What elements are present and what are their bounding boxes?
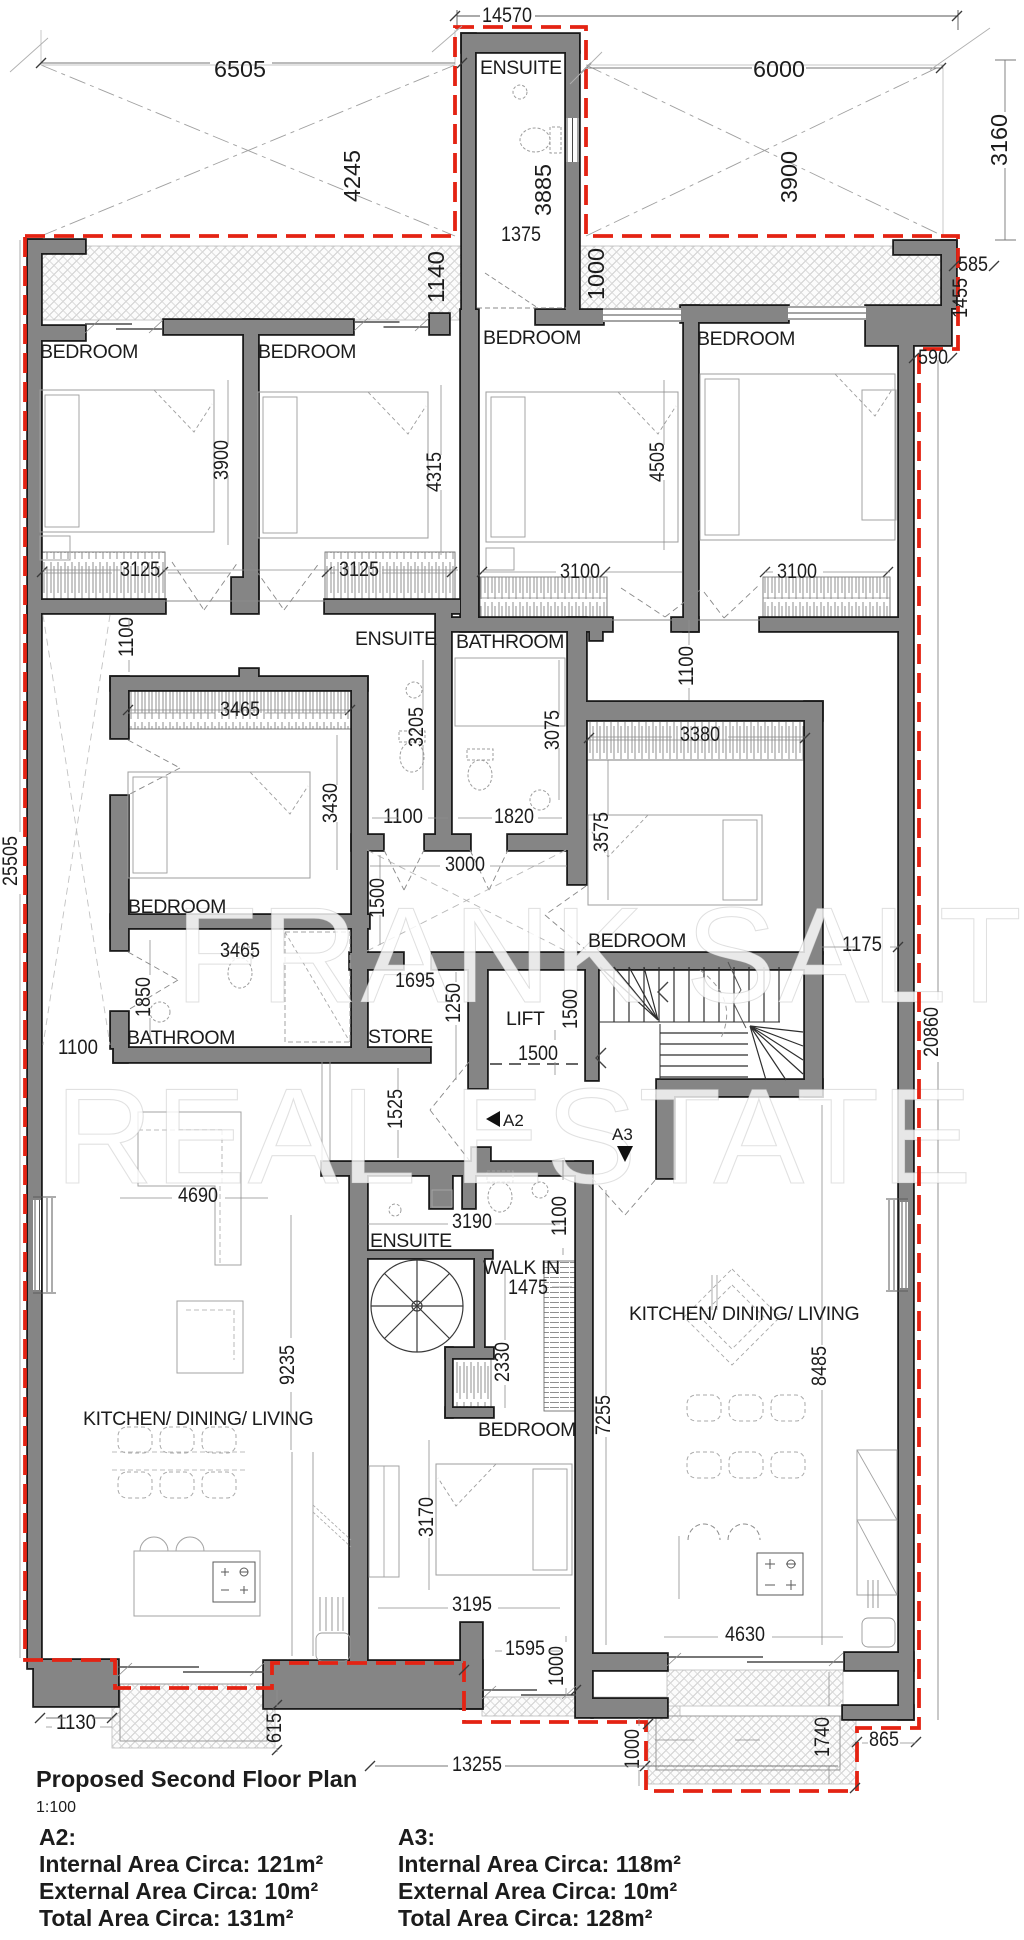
svg-text:3205: 3205 [405, 707, 428, 747]
svg-text:BEDROOM: BEDROOM [478, 1419, 576, 1441]
svg-text:4315: 4315 [423, 452, 446, 492]
svg-text:20860: 20860 [920, 1007, 943, 1057]
svg-text:7255: 7255 [592, 1395, 615, 1435]
svg-text:1250: 1250 [442, 983, 465, 1023]
svg-text:3000: 3000 [445, 853, 485, 876]
svg-text:A3:: A3: [398, 1824, 435, 1850]
svg-text:1375: 1375 [501, 223, 541, 246]
svg-text:FRANK SALT: FRANK SALT [175, 879, 1024, 1031]
svg-text:3575: 3575 [590, 812, 613, 852]
svg-text:Internal Area Circa: 118m²: Internal Area Circa: 118m² [398, 1851, 681, 1877]
svg-text:A2:: A2: [39, 1824, 76, 1850]
svg-text:1695: 1695 [395, 969, 435, 992]
svg-text:External Area Circa: 10m²: External Area Circa: 10m² [398, 1878, 677, 1904]
svg-text:4630: 4630 [725, 1623, 765, 1646]
svg-text:ENSUITE: ENSUITE [355, 628, 437, 650]
svg-text:3190: 3190 [452, 1210, 492, 1233]
svg-text:1100: 1100 [58, 1036, 98, 1059]
svg-text:3900: 3900 [210, 440, 233, 480]
svg-text:2330: 2330 [491, 1342, 514, 1382]
svg-text:1500: 1500 [559, 989, 582, 1029]
svg-text:BEDROOM: BEDROOM [697, 328, 795, 350]
svg-text:590: 590 [918, 346, 948, 369]
svg-text:1455: 1455 [949, 278, 972, 318]
svg-text:8485: 8485 [808, 1346, 831, 1386]
svg-text:BEDROOM: BEDROOM [128, 896, 226, 918]
svg-text:BATHROOM: BATHROOM [456, 631, 564, 653]
svg-text:Total Area Circa: 128m²: Total Area Circa: 128m² [398, 1905, 653, 1931]
svg-text:1140: 1140 [423, 251, 449, 303]
svg-text:1100: 1100 [383, 805, 423, 828]
svg-text:3885: 3885 [530, 164, 556, 216]
svg-text:1500: 1500 [366, 878, 389, 918]
svg-text:External Area Circa: 10m²: External Area Circa: 10m² [39, 1878, 318, 1904]
svg-text:1525: 1525 [384, 1089, 407, 1129]
svg-text:25505: 25505 [0, 836, 22, 886]
svg-text:3195: 3195 [452, 1593, 492, 1616]
svg-text:1:100: 1:100 [36, 1799, 76, 1816]
svg-text:LIFT: LIFT [506, 1008, 545, 1030]
svg-text:585: 585 [958, 253, 988, 276]
svg-text:KITCHEN/ DINING/ LIVING: KITCHEN/ DINING/ LIVING [629, 1303, 859, 1325]
svg-text:1475: 1475 [508, 1276, 548, 1299]
svg-text:1000: 1000 [545, 1646, 568, 1686]
svg-text:4505: 4505 [646, 442, 669, 482]
svg-text:BATHROOM: BATHROOM [127, 1027, 235, 1049]
svg-text:1130: 1130 [56, 1711, 96, 1734]
svg-text:1500: 1500 [518, 1042, 558, 1065]
svg-text:615: 615 [263, 1713, 286, 1743]
svg-text:Proposed Second Floor Plan: Proposed Second Floor Plan [36, 1766, 357, 1792]
svg-text:BEDROOM: BEDROOM [483, 327, 581, 349]
svg-text:1595: 1595 [505, 1637, 545, 1660]
svg-text:4690: 4690 [178, 1184, 218, 1207]
svg-text:3125: 3125 [339, 558, 379, 581]
svg-text:1100: 1100 [548, 1196, 571, 1236]
svg-text:1740: 1740 [811, 1717, 834, 1757]
svg-text:3465: 3465 [220, 698, 260, 721]
svg-text:BEDROOM: BEDROOM [258, 341, 356, 363]
svg-text:1100: 1100 [675, 646, 698, 686]
svg-text:3170: 3170 [415, 1497, 438, 1537]
svg-text:14570: 14570 [482, 4, 532, 27]
svg-text:3430: 3430 [319, 783, 342, 823]
svg-text:KITCHEN/ DINING/ LIVING: KITCHEN/ DINING/ LIVING [83, 1408, 313, 1430]
svg-text:9235: 9235 [276, 1345, 299, 1385]
svg-text:3075: 3075 [541, 710, 564, 750]
svg-text:1100: 1100 [115, 617, 138, 657]
svg-text:1000: 1000 [583, 248, 609, 300]
svg-text:1000: 1000 [621, 1729, 644, 1769]
svg-text:BEDROOM: BEDROOM [40, 341, 138, 363]
svg-text:3100: 3100 [777, 560, 817, 583]
svg-text:A2: A2 [503, 1111, 524, 1130]
svg-text:3125: 3125 [120, 558, 160, 581]
svg-text:WALK IN: WALK IN [483, 1257, 560, 1279]
svg-text:3160: 3160 [986, 114, 1012, 166]
svg-text:ENSUITE: ENSUITE [480, 57, 562, 79]
svg-text:STORE: STORE [368, 1026, 433, 1048]
svg-text:3465: 3465 [220, 939, 260, 962]
svg-text:Total Area Circa: 131m²: Total Area Circa: 131m² [39, 1905, 294, 1931]
svg-text:A3: A3 [612, 1125, 633, 1144]
svg-text:6505: 6505 [214, 56, 266, 82]
svg-text:BEDROOM: BEDROOM [588, 930, 686, 952]
svg-text:3100: 3100 [560, 560, 600, 583]
svg-text:1175: 1175 [842, 933, 882, 956]
svg-text:3900: 3900 [776, 151, 802, 203]
svg-text:ENSUITE: ENSUITE [370, 1230, 452, 1252]
svg-text:6000: 6000 [753, 56, 805, 82]
svg-text:Internal Area Circa: 121m²: Internal Area Circa: 121m² [39, 1851, 324, 1877]
svg-text:3380: 3380 [680, 723, 720, 746]
svg-text:865: 865 [869, 1728, 899, 1751]
svg-text:4245: 4245 [339, 150, 365, 202]
svg-text:13255: 13255 [452, 1753, 502, 1776]
svg-text:1820: 1820 [494, 805, 534, 828]
svg-text:1850: 1850 [132, 977, 155, 1017]
